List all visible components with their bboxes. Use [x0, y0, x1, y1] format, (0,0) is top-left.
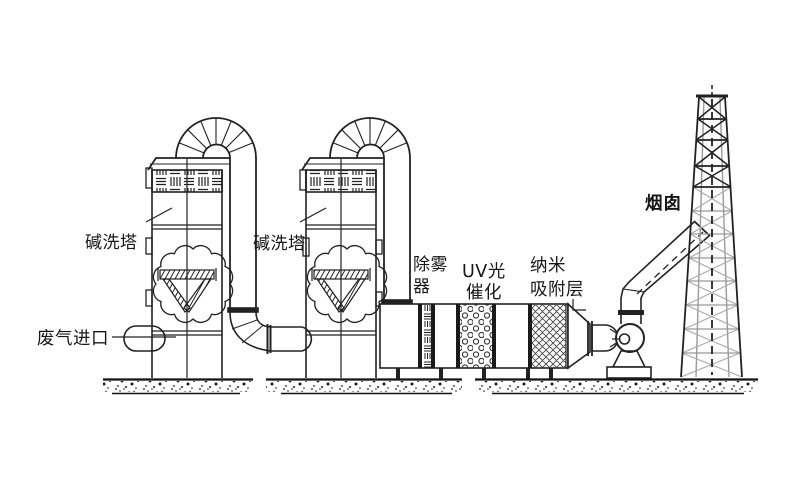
cutaway-cloud	[307, 246, 386, 323]
cutaway-cloud	[153, 246, 232, 323]
leader-lines	[146, 208, 586, 310]
nano-adsorption-band	[532, 304, 566, 368]
demister-label-line2: 器	[413, 277, 431, 297]
tower1-label: 碱洗塔	[85, 233, 138, 253]
tower2-label: 碱洗塔	[253, 234, 306, 254]
chimney-label: 烟囱	[645, 193, 682, 214]
chimney-lattice-tower	[681, 85, 742, 377]
demister-band	[422, 304, 431, 368]
uv-label-line2: 催化	[466, 283, 502, 303]
tower1-label-leader	[146, 208, 172, 222]
process-flow-diagram: 碱洗塔 碱洗塔 废气进口 除雾 器 UV光 催化 纳米 吸附层 烟囱	[0, 0, 800, 496]
nano-label-leader	[573, 299, 586, 310]
u-bend-segments	[333, 118, 407, 153]
tower2-label-leader	[300, 208, 326, 222]
fan-outlet-duct	[618, 221, 710, 324]
u-bend-segments	[179, 118, 253, 153]
waste-gas-inlet-label: 废气进口	[37, 329, 109, 349]
uv-photocatalysis-band	[460, 304, 492, 368]
alkaline-scrubber-tower-1	[146, 118, 256, 378]
uv-label-line1: UV光	[462, 262, 506, 282]
waste-gas-inlet-pipe	[112, 326, 176, 351]
demister-label-line1: 除雾	[413, 255, 448, 275]
nano-label-line1: 纳米	[530, 256, 566, 276]
ground	[103, 380, 758, 394]
treatment-chamber	[380, 304, 568, 379]
diagram-canvas: 碱洗塔 碱洗塔 废气进口 除雾 器 UV光 催化 纳米 吸附层 烟囱	[0, 0, 800, 496]
nano-label-line2: 吸附层	[530, 280, 584, 300]
duct-centerline	[637, 232, 703, 294]
flange-brackets	[146, 168, 152, 306]
tower1-outlet-elbow	[228, 308, 311, 354]
fan-pedestal	[613, 351, 645, 367]
chamber-legs	[396, 368, 553, 379]
